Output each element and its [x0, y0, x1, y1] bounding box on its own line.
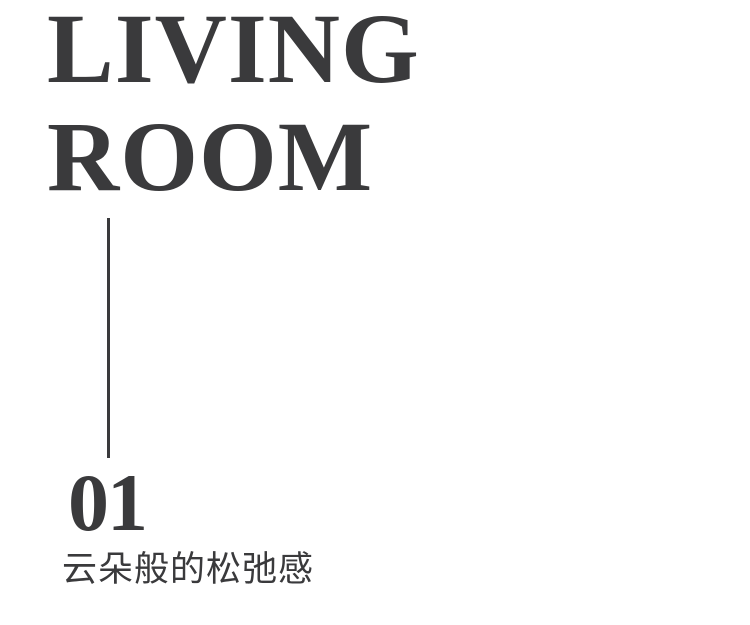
title-line-room: ROOM	[47, 103, 420, 211]
subtitle-text: 云朵般的松弛感	[62, 548, 314, 592]
title-line-living: LIVING	[47, 0, 420, 103]
section-number: 01	[68, 462, 146, 544]
vertical-divider-line	[107, 218, 110, 458]
page-title: LIVING ROOM	[47, 0, 420, 211]
poster-page: LIVING ROOM 01 云朵般的松弛感	[0, 0, 750, 625]
